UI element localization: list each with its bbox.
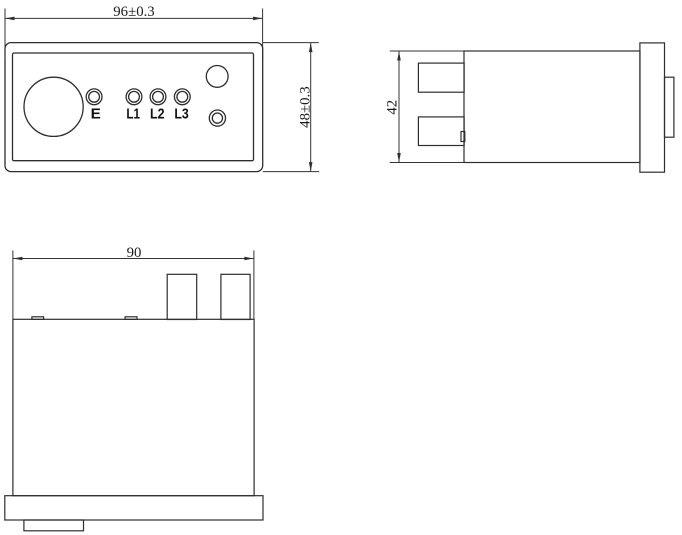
svg-text:90: 90 <box>127 245 142 261</box>
svg-text:L2: L2 <box>150 105 165 122</box>
svg-text:L1: L1 <box>126 105 140 122</box>
svg-text:L3: L3 <box>174 105 188 122</box>
svg-text:96±0.3: 96±0.3 <box>113 4 154 20</box>
svg-text:42: 42 <box>384 100 400 115</box>
svg-text:E: E <box>91 105 101 122</box>
svg-text:48±0.3: 48±0.3 <box>297 86 313 127</box>
